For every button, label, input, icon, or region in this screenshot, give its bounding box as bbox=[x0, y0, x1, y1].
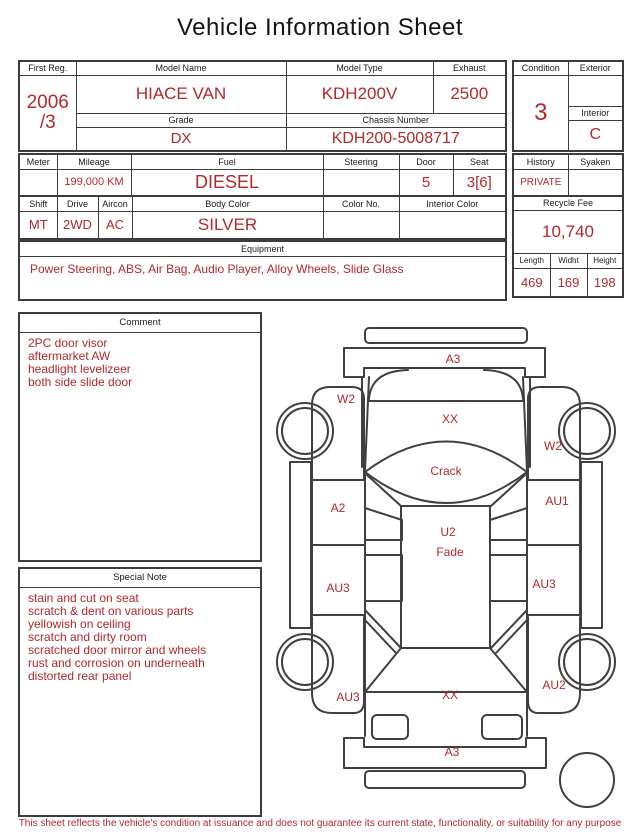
disclaimer-text: This sheet reflects the vehicle's condit… bbox=[0, 818, 640, 829]
right-rear-fender-shape bbox=[528, 617, 580, 713]
seat-value: 3[6] bbox=[453, 169, 506, 196]
vehicle-information-sheet: Vehicle Information Sheet First Reg. Mod… bbox=[0, 0, 640, 835]
damage-mark-rear-panel: XX bbox=[442, 688, 458, 702]
fuel-label: Fuel bbox=[131, 154, 323, 169]
damage-mark-left-front-door: A2 bbox=[331, 501, 346, 515]
exhaust-value: 2500 bbox=[433, 75, 506, 113]
height-value: 198 bbox=[587, 268, 623, 297]
drivetrain-table: Shift Drive Aircon Body Color Color No. … bbox=[18, 195, 507, 240]
left-tail-light bbox=[372, 715, 408, 739]
drive-value: 2WD bbox=[57, 211, 98, 239]
seat-label: Seat bbox=[453, 154, 506, 169]
vehicle-damage-diagram: A3 W2 XX Crack W2 A2 AU1 U2 Fade AU3 AU3… bbox=[268, 315, 638, 810]
comment-header: Comment bbox=[20, 314, 260, 333]
equipment-table: Equipment Power Steering, ABS, Air Bag, … bbox=[18, 240, 507, 301]
comment-box: Comment 2PC door visor aftermarket AW he… bbox=[18, 312, 262, 562]
damage-mark-right-rear-fender: AU2 bbox=[542, 678, 566, 692]
history-value: PRIVATE bbox=[513, 169, 568, 196]
damage-mark-front-panel: XX bbox=[442, 412, 458, 426]
front-left-wheel bbox=[277, 403, 333, 459]
damage-mark-left-rear-fender: AU3 bbox=[336, 690, 360, 704]
interior-color-value bbox=[399, 211, 506, 239]
exterior-value bbox=[568, 75, 623, 106]
rear-left-wheel bbox=[277, 634, 333, 690]
exhaust-label: Exhaust bbox=[433, 61, 506, 75]
drive-label: Drive bbox=[57, 196, 98, 211]
damage-mark-front-bumper: A3 bbox=[446, 352, 461, 366]
damage-mark-roof-fade: Fade bbox=[436, 545, 464, 559]
syaken-label: Syaken bbox=[568, 154, 623, 169]
body-color-value: SILVER bbox=[132, 211, 323, 239]
special-note-header: Special Note bbox=[20, 569, 260, 588]
exterior-label: Exterior bbox=[568, 61, 623, 75]
history-table: History Syaken PRIVATE bbox=[512, 153, 624, 197]
rear-bottom-bar bbox=[365, 771, 525, 788]
right-front-fender-shape bbox=[528, 387, 580, 480]
right-sill-strip bbox=[581, 462, 602, 628]
body-color-label: Body Color bbox=[132, 196, 323, 211]
model-type-value: KDH200V bbox=[286, 75, 433, 113]
spare-tire bbox=[560, 753, 614, 807]
damage-mark-right-slide-door: AU3 bbox=[532, 577, 556, 591]
chassis-number-value: KDH200-5008717 bbox=[286, 127, 506, 151]
condition-value: 3 bbox=[513, 75, 568, 151]
model-name-label: Model Name bbox=[76, 61, 286, 75]
syaken-value bbox=[568, 169, 623, 196]
fuel-value: DIESEL bbox=[131, 169, 323, 196]
rear-window-shape bbox=[365, 648, 527, 692]
condition-label: Condition bbox=[513, 61, 568, 75]
front-bumper-shape bbox=[344, 348, 545, 377]
special-note-body: stain and cut on seat scratch & dent on … bbox=[20, 588, 260, 687]
equipment-value: Power Steering, ABS, Air Bag, Audio Play… bbox=[19, 256, 506, 300]
front-top-bar bbox=[365, 328, 527, 343]
grade-value: DX bbox=[76, 127, 286, 151]
meter-label: Meter bbox=[19, 154, 57, 169]
front-right-wheel bbox=[559, 403, 615, 459]
damage-mark-left-slide-door: AU3 bbox=[326, 581, 350, 595]
right-front-door-panel bbox=[527, 480, 580, 545]
meter-value bbox=[19, 169, 57, 196]
damage-mark-right-front-fender: W2 bbox=[544, 439, 562, 453]
recycle-fee-label: Recycle Fee bbox=[513, 196, 623, 210]
aircon-label: Aircon bbox=[98, 196, 132, 211]
equipment-label: Equipment bbox=[19, 241, 506, 256]
color-no-value bbox=[323, 211, 399, 239]
interior-color-label: Interior Color bbox=[399, 196, 506, 211]
height-label: Height bbox=[587, 253, 623, 268]
comment-body: 2PC door visor aftermarket AW headlight … bbox=[20, 333, 260, 393]
length-value: 469 bbox=[513, 268, 550, 297]
recycle-fee-value: 10,740 bbox=[513, 210, 623, 253]
model-info-table: First Reg. Model Name Model Type Exhaust… bbox=[18, 60, 507, 152]
steering-value bbox=[323, 169, 399, 196]
mileage-value: 199,000 KM bbox=[57, 169, 131, 196]
rear-right-wheel bbox=[559, 634, 615, 690]
page-title: Vehicle Information Sheet bbox=[0, 14, 640, 42]
damage-mark-right-front-door: AU1 bbox=[545, 494, 569, 508]
recycle-dimensions-table: Recycle Fee 10,740 Length Widht Height 4… bbox=[512, 195, 624, 298]
first-reg-value: 2006 /3 bbox=[19, 75, 76, 151]
door-label: Door bbox=[399, 154, 453, 169]
special-note-line: distorted rear panel bbox=[28, 670, 252, 683]
length-label: Length bbox=[513, 253, 550, 268]
mileage-table: Meter Mileage Fuel Steering Door Seat 19… bbox=[18, 153, 507, 197]
interior-label: Interior bbox=[568, 106, 623, 120]
interior-value: C bbox=[568, 120, 623, 151]
grade-label: Grade bbox=[76, 113, 286, 127]
damage-mark-windshield: Crack bbox=[430, 464, 462, 478]
model-type-label: Model Type bbox=[286, 61, 433, 75]
aircon-value: AC bbox=[98, 211, 132, 239]
damage-mark-roof: U2 bbox=[440, 525, 456, 539]
right-tail-light bbox=[482, 715, 522, 739]
condition-table: Condition Exterior 3 Interior C bbox=[512, 60, 624, 152]
shift-value: MT bbox=[19, 211, 57, 239]
damage-mark-left-front-fender: W2 bbox=[337, 392, 355, 406]
steering-label: Steering bbox=[323, 154, 399, 169]
chassis-number-label: Chassis Number bbox=[286, 113, 506, 127]
color-no-label: Color No. bbox=[323, 196, 399, 211]
width-label: Widht bbox=[550, 253, 587, 268]
first-reg-label: First Reg. bbox=[19, 61, 76, 75]
special-note-box: Special Note stain and cut on seat scrat… bbox=[18, 567, 262, 817]
mileage-label: Mileage bbox=[57, 154, 131, 169]
door-value: 5 bbox=[399, 169, 453, 196]
left-slide-door-panel bbox=[312, 545, 365, 615]
shift-label: Shift bbox=[19, 196, 57, 211]
left-sill-strip bbox=[290, 462, 311, 628]
history-label: History bbox=[513, 154, 568, 169]
model-name-value: HIACE VAN bbox=[76, 75, 286, 113]
damage-mark-rear-bumper: A3 bbox=[445, 745, 460, 759]
comment-line: both side slide door bbox=[28, 376, 252, 389]
width-value: 169 bbox=[550, 268, 587, 297]
